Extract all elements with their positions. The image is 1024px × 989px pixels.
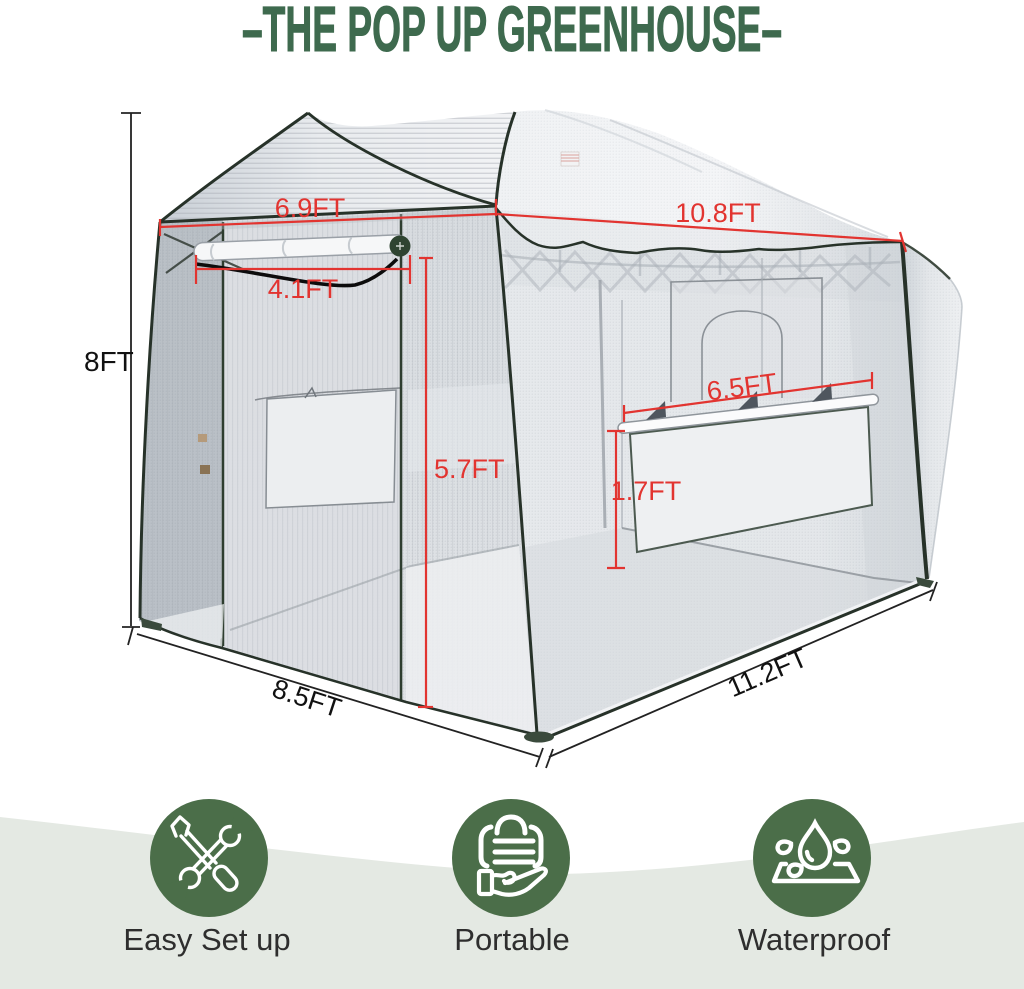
- svg-text:6.9FT: 6.9FT: [275, 193, 346, 223]
- svg-text:10.8FT: 10.8FT: [675, 198, 761, 228]
- svg-text:4.1FT: 4.1FT: [268, 274, 339, 304]
- svg-text:Waterproof: Waterproof: [738, 922, 891, 957]
- svg-text:8FT: 8FT: [84, 346, 134, 377]
- svg-text:Portable: Portable: [454, 922, 569, 957]
- svg-text:–THE POP UP GREENHOUSE–: –THE POP UP GREENHOUSE–: [242, 0, 782, 65]
- svg-text:Easy Set up: Easy Set up: [123, 922, 290, 957]
- svg-text:5.7FT: 5.7FT: [434, 454, 505, 484]
- svg-text:1.7FT: 1.7FT: [611, 476, 682, 506]
